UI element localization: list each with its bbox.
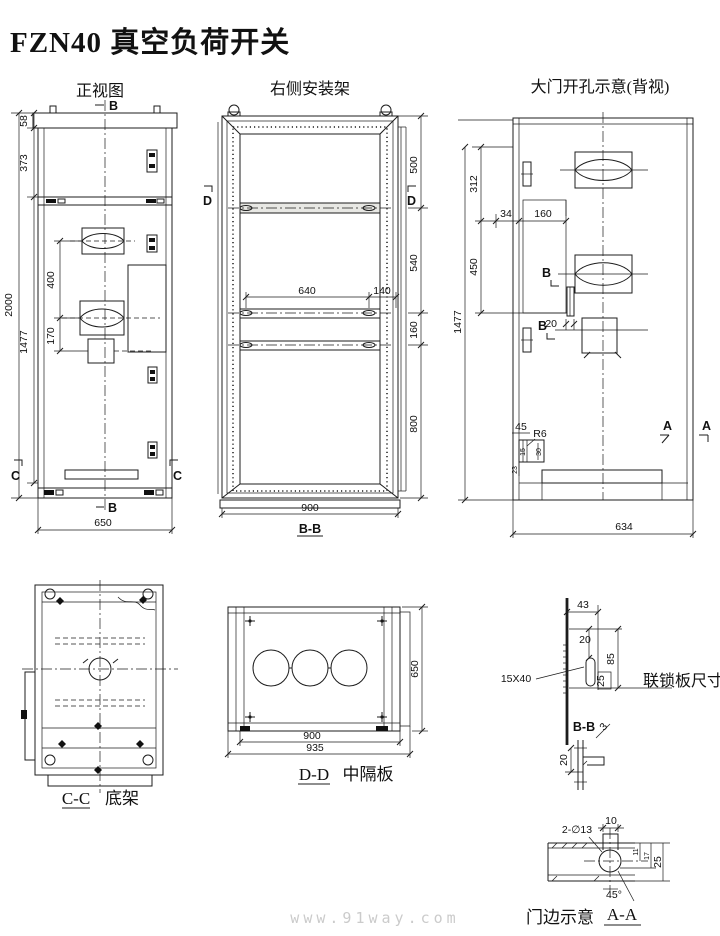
door-view: 大门开孔示意(背视) 20 B B	[452, 77, 711, 538]
door-marker-a2: A	[702, 419, 711, 433]
front-view-label: 正视图	[76, 82, 124, 100]
dim-900-partition: 900	[303, 730, 321, 742]
slot-size-callout: 15X40	[501, 673, 532, 685]
interlock-label: 联锁板尺寸	[643, 672, 720, 690]
hinge-pad	[147, 150, 157, 458]
dim-170: 170	[45, 327, 57, 345]
dim-935: 935	[306, 742, 324, 754]
door-edge-section-label: A-A	[607, 905, 638, 924]
cc-name-label: 底架	[105, 789, 139, 808]
dim-15: 15	[520, 448, 527, 456]
dim-25-interlock: 25	[595, 675, 607, 687]
door-edge-view: 10 2-∅13 11 17 25 45° 门边示意 A-A	[526, 815, 670, 927]
dim-23: 23	[512, 466, 519, 474]
dim-160-door: 160	[534, 208, 552, 220]
section-marker-c-left: C	[11, 469, 20, 483]
chamfer-3: 3	[597, 721, 610, 733]
section-marker-d-right: D	[407, 194, 416, 208]
dim-140: 140	[373, 285, 391, 297]
dim-160: 160	[408, 321, 420, 339]
dim-58: 58	[18, 115, 30, 127]
dim-400: 400	[45, 271, 57, 289]
dim-17: 17	[644, 852, 651, 860]
section-marker-d-left: D	[203, 194, 212, 208]
dim-85: 85	[605, 653, 617, 665]
watermark: www.91way.com	[290, 909, 459, 927]
dim-312: 312	[468, 175, 480, 193]
cc-bottom-frame-view: C-C 底架	[21, 580, 178, 808]
radius-r6: R6	[533, 428, 547, 440]
dim-20-interlock: 20	[579, 634, 591, 646]
dim-25: 25	[652, 856, 664, 868]
dim-1477: 1477	[18, 330, 30, 354]
front-view: 正视图 B	[3, 82, 182, 534]
dim-20-profile: 20	[558, 754, 570, 766]
interlock-section-label: B-B	[573, 720, 595, 734]
dim-450: 450	[468, 258, 480, 276]
dim-800: 800	[408, 415, 420, 433]
section-marker-b-bottom: B	[108, 501, 117, 515]
dim-640: 640	[298, 285, 316, 297]
dim-373: 373	[18, 154, 30, 172]
side-frame-label: 右侧安装架	[270, 80, 350, 98]
hole-callout: 2-∅13	[562, 824, 592, 836]
dim-900: 900	[301, 502, 319, 514]
door-grille	[542, 470, 662, 483]
section-marker-b-top: B	[109, 99, 118, 113]
dim-10: 10	[605, 815, 617, 827]
side-frame-view: 右侧安装架 500 540 160 8	[203, 80, 428, 536]
side-frame-section-label: B-B	[299, 522, 321, 536]
drawing-sheet: FZN40 真空负荷开关 正视图 B	[0, 0, 720, 936]
dim-540: 540	[408, 254, 420, 272]
door-marker-a1: A	[663, 419, 672, 433]
door-marker-b2: B	[538, 319, 547, 333]
bolt-mark	[245, 616, 387, 722]
dim-45-corner: 45	[515, 421, 527, 433]
dim-43: 43	[577, 599, 589, 611]
dd-section-label: D-D	[299, 765, 329, 784]
dim-11: 11	[633, 848, 640, 855]
angle-45: 45°	[606, 889, 622, 901]
dim-500: 500	[408, 156, 420, 174]
door-edge-label: 门边示意	[526, 908, 594, 927]
dim-1477-door: 1477	[452, 310, 464, 334]
dim-650-partition: 650	[409, 660, 421, 678]
dim-2000: 2000	[3, 293, 15, 317]
front-grille	[65, 470, 138, 479]
dim-20-bar: 20	[545, 318, 557, 330]
dim-650: 650	[94, 517, 112, 529]
section-marker-c-right: C	[173, 469, 182, 483]
door-marker-b1: B	[542, 266, 551, 280]
technical-drawing: FZN40 真空负荷开关 正视图 B	[0, 0, 720, 936]
dd-partition-view: 650 900 935 D-D 中隔板	[225, 604, 428, 784]
dim-34: 34	[500, 208, 512, 220]
dim-30: 30	[536, 448, 543, 456]
dim-634: 634	[615, 521, 633, 533]
page-title: FZN40 真空负荷开关	[10, 25, 290, 59]
interlock-plate-view: 43 20 85 25 15X40 联锁板尺寸 B-B 3 20	[501, 598, 720, 790]
dd-name-label: 中隔板	[343, 765, 394, 784]
door-view-label: 大门开孔示意(背视)	[531, 77, 670, 96]
cc-section-label: C-C	[62, 789, 90, 808]
